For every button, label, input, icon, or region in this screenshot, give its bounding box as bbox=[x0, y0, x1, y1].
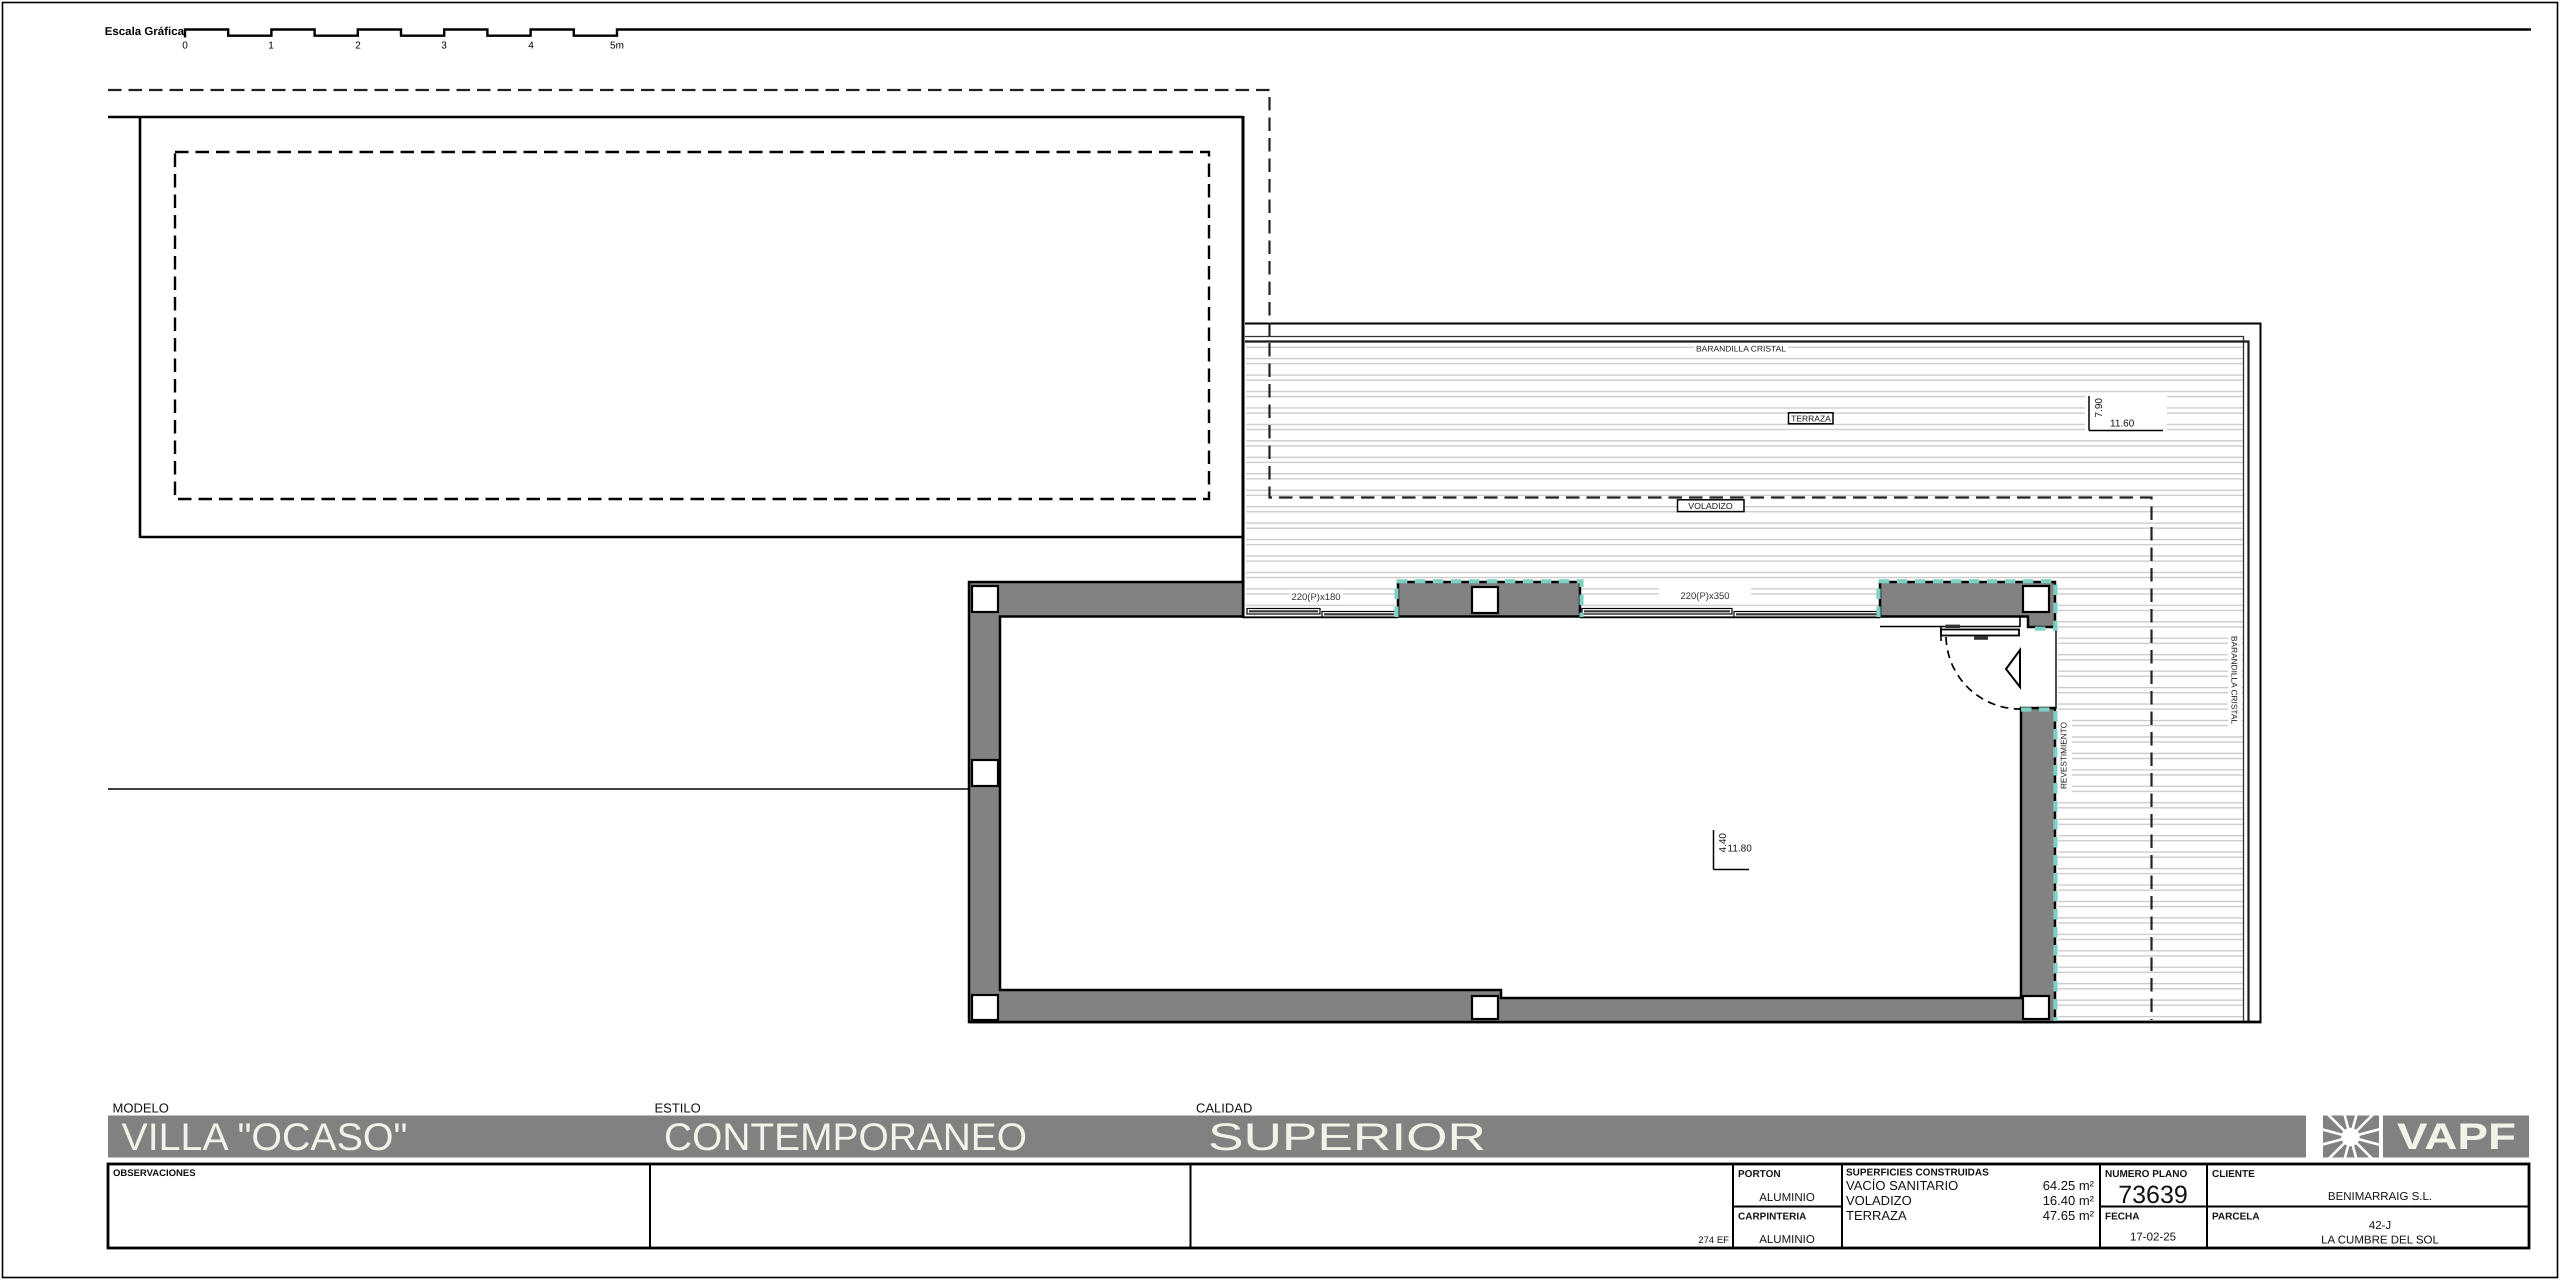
svg-text:64.25 m²: 64.25 m² bbox=[2043, 1178, 2095, 1193]
svg-text:REVESTIMIENTO: REVESTIMIENTO bbox=[2059, 722, 2069, 789]
svg-text:1: 1 bbox=[268, 41, 274, 52]
svg-text:PARCELA: PARCELA bbox=[2212, 1212, 2260, 1223]
svg-text:CLIENTE: CLIENTE bbox=[2212, 1169, 2255, 1180]
svg-text:17-02-25: 17-02-25 bbox=[2130, 1232, 2176, 1244]
svg-text:LA CUMBRE DEL SOL: LA CUMBRE DEL SOL bbox=[2321, 1235, 2439, 1247]
svg-text:3: 3 bbox=[441, 41, 447, 52]
svg-text:VACÍO SANITARIO: VACÍO SANITARIO bbox=[1846, 1178, 1958, 1193]
svg-text:MODELO: MODELO bbox=[113, 1101, 169, 1116]
svg-text:VOLADIZO: VOLADIZO bbox=[1688, 501, 1733, 511]
svg-text:FECHA: FECHA bbox=[2105, 1212, 2139, 1223]
svg-text:4: 4 bbox=[528, 41, 534, 52]
svg-text:16.40 m²: 16.40 m² bbox=[2043, 1193, 2095, 1208]
svg-text:CONTEMPORANEO: CONTEMPORANEO bbox=[664, 1116, 1027, 1159]
svg-text:274 EF: 274 EF bbox=[1698, 1235, 1729, 1246]
svg-text:11.60: 11.60 bbox=[2110, 419, 2135, 430]
svg-text:BARANDILLA CRISTAL: BARANDILLA CRISTAL bbox=[2230, 636, 2239, 724]
svg-text:SUPERIOR: SUPERIOR bbox=[1208, 1116, 1486, 1159]
svg-text:TERRAZA: TERRAZA bbox=[1846, 1208, 1907, 1223]
svg-text:NUMERO PLANO: NUMERO PLANO bbox=[2105, 1169, 2187, 1180]
svg-text:5m: 5m bbox=[610, 41, 624, 52]
svg-text:VOLADIZO: VOLADIZO bbox=[1846, 1193, 1912, 1208]
svg-text:BENIMARRAIG S.L.: BENIMARRAIG S.L. bbox=[2328, 1191, 2432, 1203]
svg-text:73639: 73639 bbox=[2118, 1181, 2188, 1209]
svg-text:VILLA "OCASO": VILLA "OCASO" bbox=[122, 1116, 408, 1159]
svg-text:7.90: 7.90 bbox=[2094, 398, 2105, 418]
svg-text:0: 0 bbox=[182, 41, 188, 52]
svg-text:OBSERVACIONES: OBSERVACIONES bbox=[113, 1168, 196, 1179]
svg-text:CALIDAD: CALIDAD bbox=[1196, 1101, 1252, 1116]
svg-text:ALUMINIO: ALUMINIO bbox=[1759, 1192, 1815, 1204]
svg-text:Escala Gráfica: Escala Gráfica bbox=[105, 26, 185, 38]
svg-text:42-J: 42-J bbox=[2369, 1220, 2391, 1232]
svg-text:TERRAZA: TERRAZA bbox=[1791, 413, 1831, 423]
svg-text:11.80: 11.80 bbox=[1728, 844, 1753, 855]
svg-text:ALUMINIO: ALUMINIO bbox=[1759, 1234, 1815, 1246]
svg-text:BARANDILLA CRISTAL: BARANDILLA CRISTAL bbox=[1696, 345, 1786, 354]
svg-text:47.65 m²: 47.65 m² bbox=[2043, 1208, 2095, 1223]
svg-text:CARPINTERIA: CARPINTERIA bbox=[1738, 1212, 1806, 1223]
svg-text:2: 2 bbox=[355, 41, 361, 52]
svg-text:220(P)x180: 220(P)x180 bbox=[1291, 592, 1340, 603]
svg-text:SUPERFICIES CONSTRUIDAS: SUPERFICIES CONSTRUIDAS bbox=[1846, 1168, 1989, 1179]
svg-text:VAPF: VAPF bbox=[2397, 1116, 2516, 1157]
svg-text:ESTILO: ESTILO bbox=[655, 1101, 701, 1116]
svg-text:PORTON: PORTON bbox=[1738, 1169, 1781, 1180]
svg-text:220(P)x350: 220(P)x350 bbox=[1680, 591, 1729, 602]
